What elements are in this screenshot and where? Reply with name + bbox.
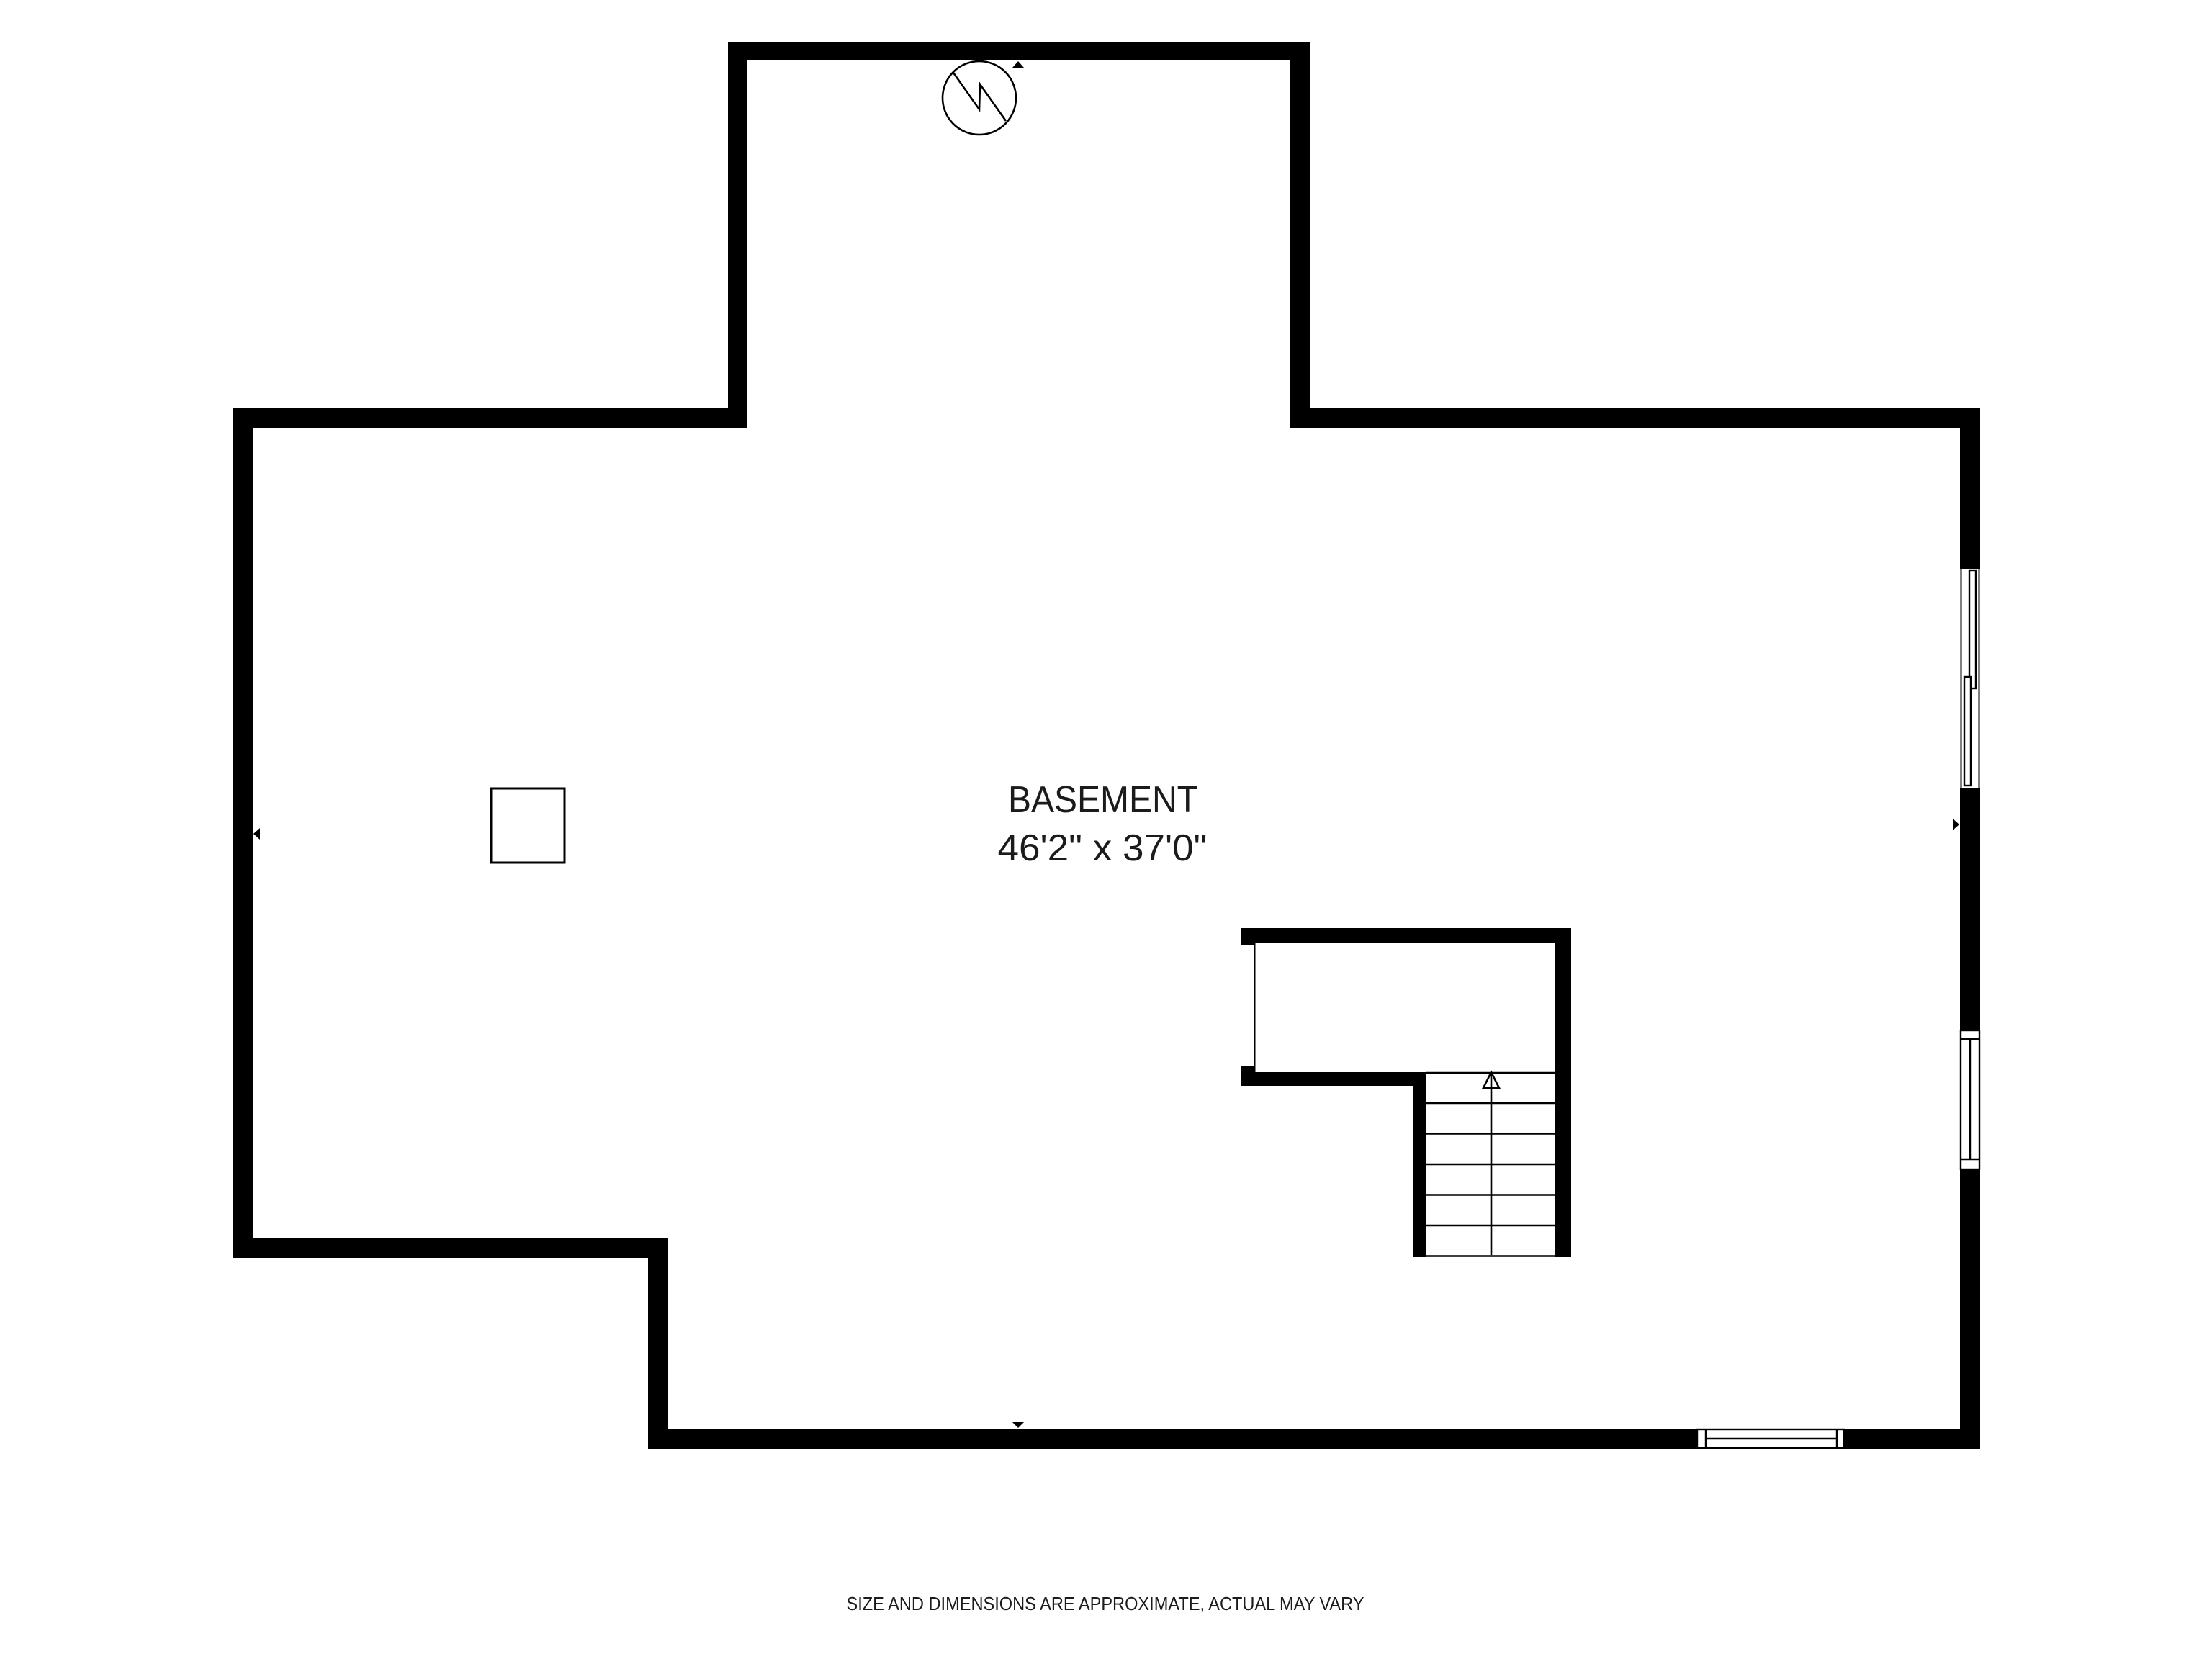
- svg-text:46'2" x 37'0": 46'2" x 37'0": [998, 827, 1208, 869]
- svg-text:SIZE AND DIMENSIONS ARE APPROX: SIZE AND DIMENSIONS ARE APPROXIMATE, ACT…: [847, 1593, 1364, 1614]
- svg-text:BASEMENT: BASEMENT: [1008, 779, 1198, 821]
